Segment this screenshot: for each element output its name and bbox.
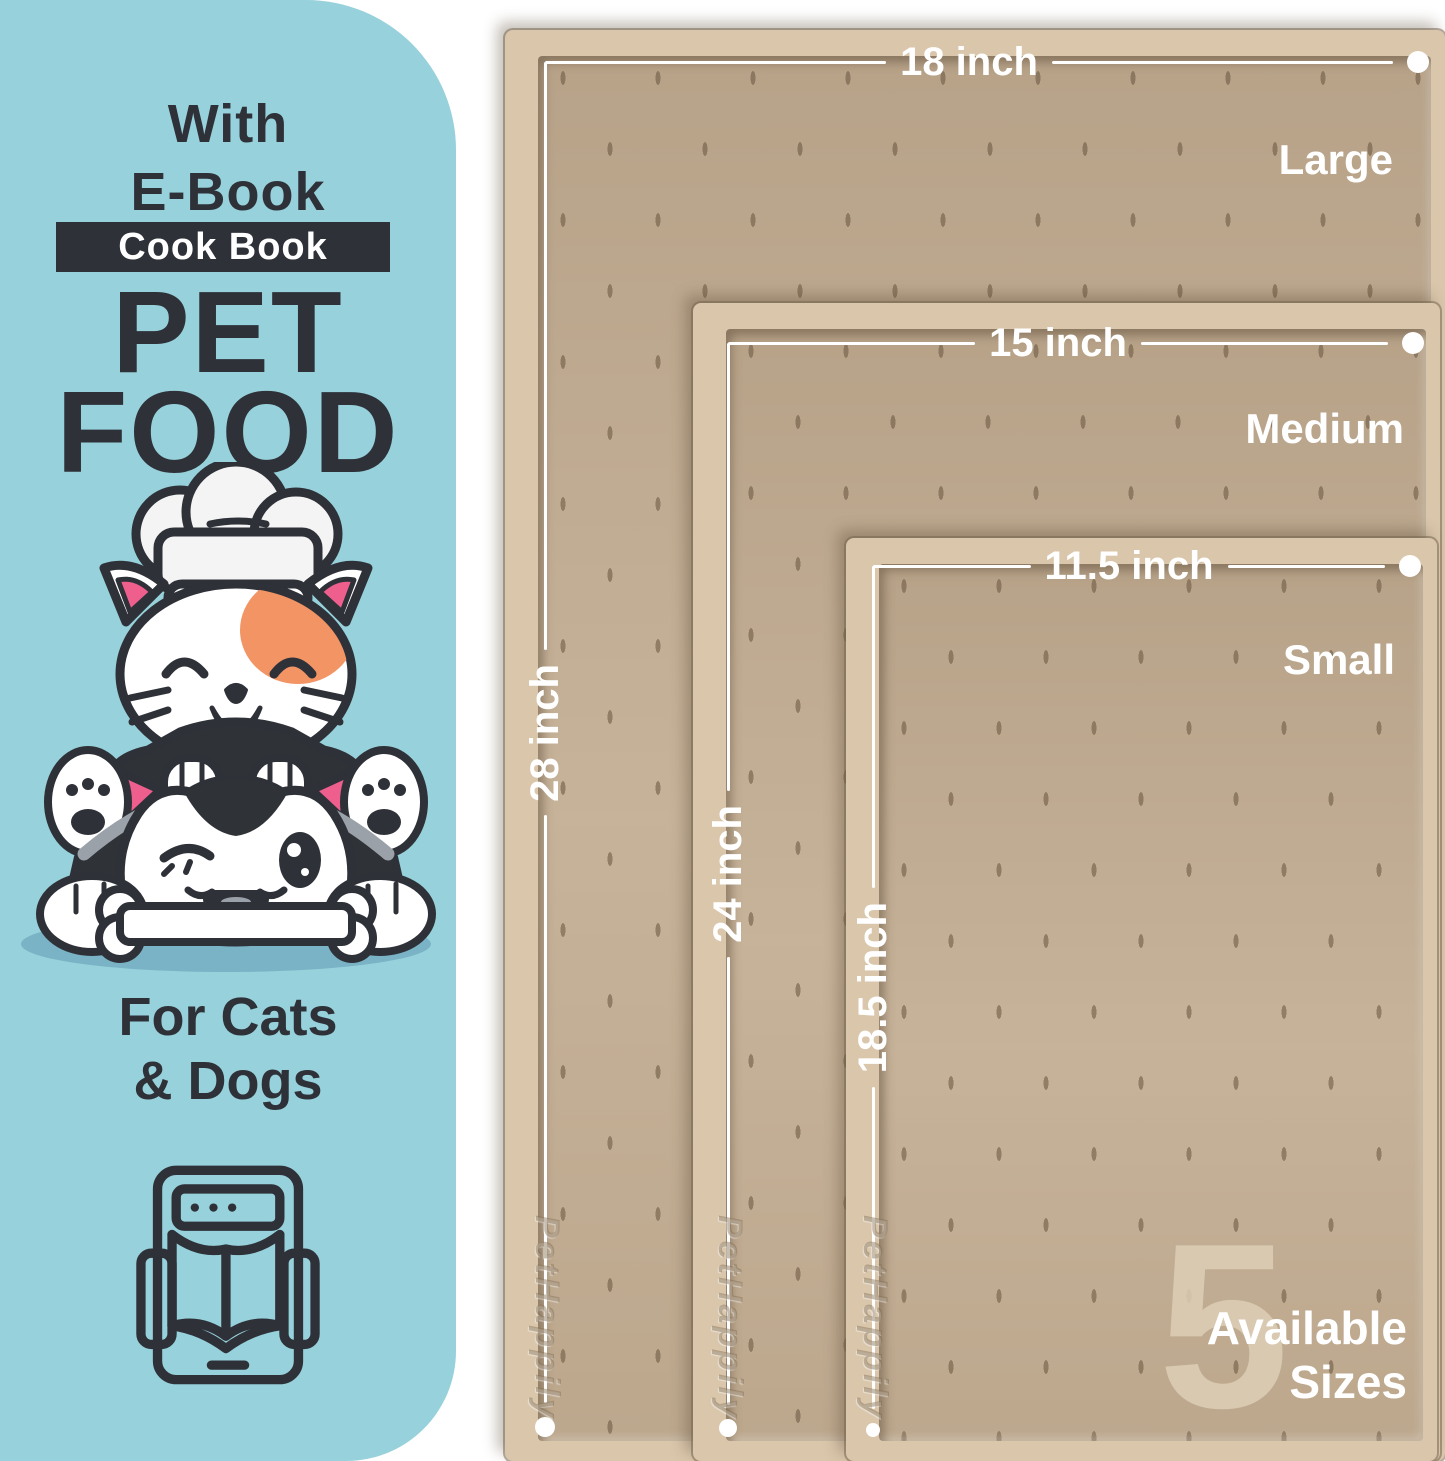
width-value: 18 inch [900, 40, 1038, 85]
height-value: 18.5 inch [851, 902, 896, 1073]
measure-line [1141, 342, 1388, 345]
measure-line [872, 566, 875, 888]
available-line2: Sizes [1207, 1356, 1407, 1409]
size-label-medium: Medium [1245, 405, 1404, 453]
measure-endpoint-dot [1407, 51, 1429, 73]
ebook-heading-line1: With [0, 90, 456, 158]
measure-endpoint-dot [1399, 555, 1421, 577]
cookbook-banner: Cook Book [56, 222, 390, 272]
cat-nose [226, 685, 246, 702]
measure-line [727, 343, 730, 791]
height-value: 24 inch [706, 805, 751, 943]
mat-large-width-measure: 18 inch [545, 40, 1429, 84]
measure-line [1228, 565, 1386, 568]
measure-line [545, 61, 886, 64]
dog-open-eye [279, 832, 321, 888]
measure-line [1052, 61, 1393, 64]
measure-line [873, 565, 1031, 568]
measure-endpoint-dot [1402, 332, 1424, 354]
measure-line [544, 62, 547, 650]
mat-small-width-measure: 11.5 inch [873, 544, 1421, 588]
width-value: 11.5 inch [1045, 544, 1214, 589]
measure-line [728, 342, 975, 345]
size-label-small: Small [1283, 636, 1395, 684]
available-line1: Available [1207, 1302, 1407, 1355]
audience-line1: For Cats [0, 985, 456, 1049]
size-label-large: Large [1279, 136, 1393, 184]
available-sizes-text: Available Sizes [1207, 1302, 1407, 1409]
audience-text: For Cats & Dogs [0, 985, 456, 1113]
cat-chef-dog-illustration [8, 462, 448, 977]
embossed-brand: PetHappily [855, 1215, 894, 1421]
audience-line2: & Dogs [0, 1049, 456, 1113]
measure-endpoint-dot [866, 1423, 880, 1437]
width-value: 15 inch [989, 321, 1127, 366]
pet-food-title: PET FOOD [0, 282, 456, 482]
embossed-brand: PetHappily [710, 1215, 749, 1421]
embossed-brand: PetHappily [527, 1215, 566, 1421]
measure-endpoint-dot [719, 1419, 737, 1437]
mat-medium-width-measure: 15 inch [728, 321, 1424, 365]
left-info-panel: With E-Book Cook Book PET FOOD [0, 0, 456, 1461]
ebook-heading: With E-Book [0, 90, 456, 226]
height-value: 28 inch [523, 664, 568, 802]
product-image: With E-Book Cook Book PET FOOD [0, 0, 1445, 1461]
ebook-icon [133, 1162, 323, 1390]
ebook-heading-line2: E-Book [0, 158, 456, 226]
mat-small: 11.5 inch 18.5 inch Small PetHappily 5 A… [846, 538, 1437, 1461]
